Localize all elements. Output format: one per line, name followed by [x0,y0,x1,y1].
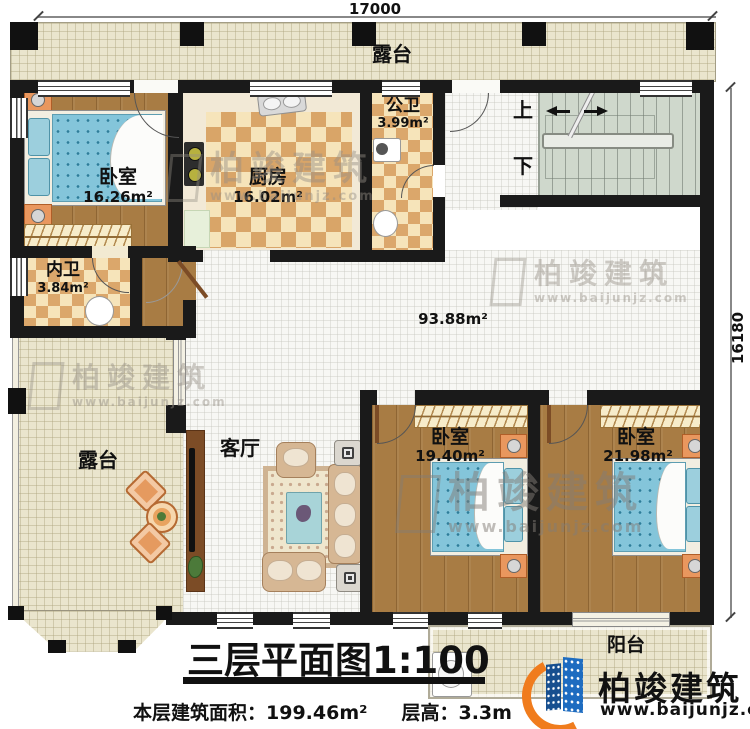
terrace-left-floor [12,333,183,612]
wardrobe [414,405,528,428]
bed-blanket [656,463,685,549]
column [180,22,204,46]
stairs-up-label: 上 [510,100,536,121]
sofa-cushion [334,472,356,496]
burner-icon [188,168,202,182]
wall [360,405,372,625]
sofa-loveseat [262,552,326,592]
window [468,612,502,629]
wall [587,390,714,405]
table-plant-icon [157,512,166,521]
wall [433,92,445,165]
footer-height-value: 3.3m [458,702,511,724]
stair-direction-arrow-right-icon [597,106,608,116]
room-label-terrace-left: 露台 [66,450,130,471]
floor-plan-canvas: 露台 卧室 16.26m² 厨房 16.02m² 公卫 3.99m² 内卫 3.… [0,0,750,729]
wall [700,80,714,614]
room-area-bedroom1: 16.26m² [76,190,160,206]
wall [415,390,549,405]
column [686,22,714,50]
bed-blanket [474,463,503,549]
sofa-cushion [296,560,322,581]
room-label-inner-bath: 内卫 [38,262,88,280]
logo-building-icon [563,657,583,713]
brand-logo: 柏竣建筑 www.baijunjz.com [516,648,742,726]
toilet-bowl [376,143,388,155]
wash-basin [373,210,398,237]
sofa-section [328,464,362,564]
lamp-icon [507,559,521,573]
window [10,258,28,296]
pillow [28,118,50,156]
footer-height-label: 层高： [401,702,458,724]
hall-area-label: 93.88m² [408,312,498,328]
wall [130,258,142,326]
side-table [334,440,362,466]
sofa-cushion [334,503,356,527]
nightstand [500,554,527,578]
toilet [373,138,401,162]
lamp-icon [31,209,45,223]
room-area-bedroom3: 21.98m² [596,449,680,465]
door-opening [92,246,128,258]
sofa-cushion [283,448,309,467]
title-underline [183,677,485,684]
bay-window-post [118,640,136,653]
logo-url-text: www.baijunjz.com [600,700,750,720]
room-area-inner-bath: 3.84m² [32,282,94,296]
bay-window-post [48,640,66,653]
plan-scale: 1:100 [372,639,490,682]
terrace-left-parapet [12,338,19,612]
terrace-left-baywindow-floor [12,610,172,654]
nightstand [500,434,527,458]
footer-area-label: 本层建筑面积： [133,702,266,724]
window [10,98,28,138]
dimension-value-right: 16180 [729,303,745,373]
wash-basin [85,296,114,326]
stair-handrail [542,133,674,149]
column [522,22,546,46]
room-label-bedroom3: 卧室 [608,428,664,448]
window [382,80,420,97]
wall [270,250,445,262]
pillow [504,506,523,542]
logo-building-icon [546,663,561,711]
window [393,612,428,629]
table-decor-icon [296,505,311,522]
window [640,80,692,97]
pillow [504,468,523,504]
window [38,80,130,97]
wardrobe [600,405,702,428]
window [217,612,253,629]
table-lamp-icon [344,572,356,584]
sofa-cushion [334,534,356,558]
wall [360,92,372,250]
lamp-icon [507,439,521,453]
room-label-bedroom1: 卧室 [80,168,156,188]
room-area-kitchen: 16.02m² [226,190,310,206]
wall [500,195,714,207]
burner-icon [188,147,202,161]
door-opening [134,80,178,93]
kitchen-mat [184,210,210,248]
room-label-bedroom2: 卧室 [422,428,478,448]
terrace-living-slider-door [173,338,186,407]
window [250,80,332,97]
footer-area-value: 199.46m² [266,702,367,724]
sofa-cushion [267,560,293,581]
table-lamp-icon [342,447,354,459]
stove [184,142,204,186]
wall [166,405,186,433]
room-label-kitchen: 厨房 [230,168,306,188]
plan-title: 三层平面图1:100 [187,630,490,684]
wall [360,390,377,405]
wall [433,197,445,250]
dimension-value-top: 17000 [320,0,430,18]
room-label-terrace-top: 露台 [352,44,432,65]
tv-screen [189,448,195,552]
wall [166,330,186,340]
pillow [28,158,50,196]
door-opening [452,80,500,93]
stair-direction-line-left [556,110,570,113]
window [293,612,330,629]
plan-title-text: 三层平面图 [187,639,372,682]
bay-window-post [156,606,172,620]
column [8,388,26,414]
balcony-slider-door [572,612,670,627]
room-area-public-bath: 3.99m² [372,117,434,131]
room-label-public-bath: 公卫 [378,98,428,116]
column [10,22,38,50]
coffee-table [286,492,322,544]
room-area-bedroom2: 19.40m² [408,449,492,465]
room-label-living: 客厅 [208,438,272,459]
sofa-armchair [276,442,316,478]
stair-direction-line-right [584,110,598,113]
sink-basin [262,96,281,111]
wall [528,405,540,625]
plan-footer: 本层建筑面积：199.46m²层高：3.3m [133,698,512,725]
stairs-down-label: 下 [510,156,536,177]
bay-window-post [8,606,24,620]
